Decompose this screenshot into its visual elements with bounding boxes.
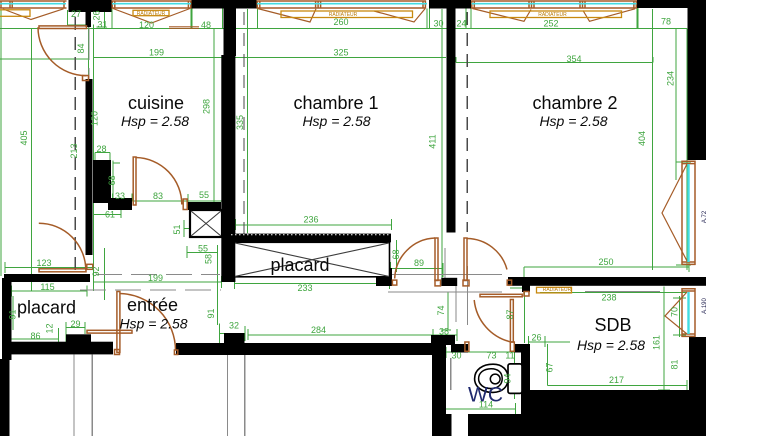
svg-text:33: 33 — [115, 191, 125, 201]
svg-text:298: 298 — [202, 99, 212, 114]
svg-text:26: 26 — [531, 333, 541, 343]
svg-text:29: 29 — [70, 319, 80, 329]
svg-text:67: 67 — [545, 362, 555, 372]
svg-text:placard: placard — [17, 298, 76, 318]
svg-text:354: 354 — [566, 54, 581, 64]
svg-text:199: 199 — [148, 273, 163, 283]
svg-text:cuisine: cuisine — [128, 93, 184, 113]
svg-text:Hsp = 2.58: Hsp = 2.58 — [119, 316, 187, 332]
svg-text:411: 411 — [428, 134, 438, 148]
svg-text:250: 250 — [598, 257, 613, 267]
svg-text:91: 91 — [206, 308, 216, 318]
svg-text:89: 89 — [414, 258, 424, 268]
svg-text:405: 405 — [19, 130, 29, 145]
svg-text:28: 28 — [96, 144, 106, 154]
svg-text:233: 233 — [297, 283, 312, 293]
svg-text:252: 252 — [543, 19, 558, 29]
svg-text:38: 38 — [439, 327, 449, 337]
svg-text:86: 86 — [30, 331, 40, 341]
svg-text:Hsp = 2.58: Hsp = 2.58 — [121, 113, 189, 129]
svg-text:32: 32 — [229, 321, 239, 331]
svg-text:Hsp = 2.58: Hsp = 2.58 — [577, 337, 645, 353]
svg-text:123: 123 — [36, 258, 51, 268]
svg-text:115: 115 — [40, 282, 54, 292]
svg-text:SDB: SDB — [594, 315, 631, 335]
svg-text:260: 260 — [333, 17, 348, 27]
svg-text:236: 236 — [303, 215, 318, 225]
svg-text:120: 120 — [139, 20, 154, 30]
svg-text:12: 12 — [45, 323, 55, 333]
svg-text:325: 325 — [333, 48, 348, 58]
svg-text:chambre 2: chambre 2 — [532, 93, 617, 113]
svg-text:55: 55 — [199, 190, 209, 200]
svg-text:58: 58 — [204, 254, 214, 264]
svg-text:31: 31 — [97, 20, 107, 30]
svg-text:404: 404 — [637, 131, 647, 146]
svg-text:84: 84 — [76, 43, 86, 53]
svg-text:78: 78 — [661, 17, 671, 27]
svg-text:92: 92 — [91, 266, 101, 276]
svg-text:234: 234 — [666, 71, 676, 86]
svg-text:A.72: A.72 — [702, 210, 708, 223]
svg-text:74: 74 — [436, 305, 446, 315]
svg-text:217: 217 — [609, 375, 624, 385]
svg-text:213: 213 — [69, 143, 79, 158]
svg-text:161: 161 — [652, 335, 662, 350]
svg-text:61: 61 — [105, 210, 115, 220]
svg-text:RADIATEUR: RADIATEUR — [538, 12, 567, 18]
svg-text:81: 81 — [670, 359, 680, 369]
svg-text:199: 199 — [149, 48, 164, 58]
svg-text:chambre 1: chambre 1 — [293, 93, 378, 113]
svg-text:entrée: entrée — [127, 295, 178, 315]
svg-text:30: 30 — [433, 19, 443, 29]
svg-text:24: 24 — [456, 19, 466, 29]
svg-text:RADIATEUR: RADIATEUR — [543, 287, 572, 293]
svg-text:11: 11 — [505, 351, 514, 361]
svg-text:70: 70 — [670, 307, 680, 317]
svg-text:114: 114 — [479, 400, 493, 410]
svg-text:51: 51 — [172, 224, 182, 234]
svg-text:placard: placard — [270, 255, 329, 275]
svg-text:48: 48 — [201, 20, 211, 30]
svg-text:30: 30 — [451, 351, 461, 361]
svg-text:120: 120 — [90, 111, 100, 126]
svg-text:Hsp = 2.58: Hsp = 2.58 — [302, 113, 370, 129]
svg-text:55: 55 — [198, 244, 208, 254]
svg-text:91: 91 — [8, 309, 18, 319]
svg-text:Hsp = 2.58: Hsp = 2.58 — [539, 113, 607, 129]
svg-text:68: 68 — [391, 249, 401, 259]
svg-text:238: 238 — [601, 293, 616, 303]
svg-text:87: 87 — [505, 309, 515, 319]
svg-text:94: 94 — [503, 373, 513, 383]
svg-text:83: 83 — [153, 191, 163, 201]
svg-text:68: 68 — [107, 175, 117, 185]
svg-text:73: 73 — [486, 351, 496, 361]
svg-text:284: 284 — [311, 325, 326, 335]
svg-text:27: 27 — [71, 9, 81, 19]
svg-text:335: 335 — [235, 115, 245, 130]
svg-text:RADIATEUR: RADIATEUR — [137, 11, 166, 17]
svg-text:A.190: A.190 — [702, 298, 708, 314]
